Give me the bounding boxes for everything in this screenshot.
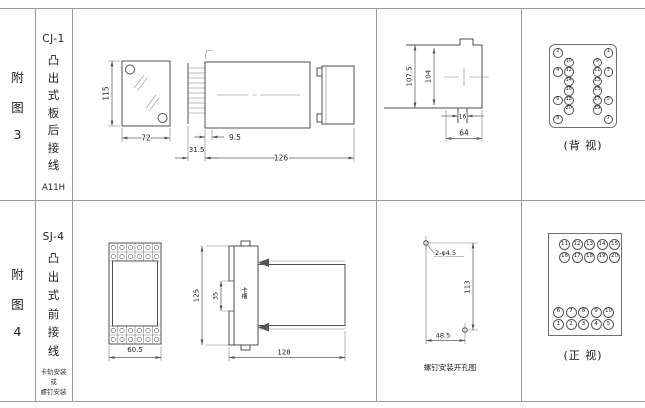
terminal-19: 19 bbox=[593, 105, 603, 115]
terminal-row: 12345 bbox=[553, 319, 619, 330]
dim-front-width: 72 bbox=[141, 134, 151, 143]
terminal-7: 7 bbox=[604, 115, 614, 125]
fig3-type-char: 式 bbox=[48, 87, 60, 103]
terminal-18: 18 bbox=[584, 252, 595, 263]
terminal-row: 109 bbox=[553, 58, 613, 68]
fig3-type-column: CJ-1 凸 出 式 板 后 接 线 A11H bbox=[35, 9, 72, 200]
fig3-index-char: 图 bbox=[11, 97, 24, 116]
terminal-row: 21 bbox=[553, 48, 613, 58]
mount-note-line: 螺钉安装 bbox=[41, 387, 67, 397]
fig3-index-char: 附 bbox=[11, 67, 24, 86]
terminal-row: 618175 bbox=[553, 96, 613, 106]
fig3-code-label: A11H bbox=[42, 183, 65, 193]
terminal-row: 87 bbox=[553, 115, 613, 125]
dim-hole-spacing-h: 48.5 bbox=[436, 332, 450, 340]
terminal-10: 10 bbox=[603, 307, 614, 318]
dim-body-length: 128 bbox=[277, 349, 290, 357]
fig4-mount-note: 卡轨安装 或 螺钉安装 bbox=[41, 367, 67, 397]
hole-note-label: 2-φ4.5 bbox=[435, 249, 456, 257]
terminal-empty bbox=[553, 105, 563, 115]
terminal-8: 8 bbox=[578, 307, 589, 318]
terminal-6: 6 bbox=[553, 96, 563, 106]
cj1-cutout-profile-drawing: 107.5 104 16 64 bbox=[376, 8, 521, 200]
fig3-type-char: 出 bbox=[48, 70, 60, 86]
terminal-19: 19 bbox=[597, 252, 608, 263]
fig4-type-char: 式 bbox=[48, 287, 60, 303]
terminal-empty bbox=[564, 115, 574, 125]
dim-body-length: 126 bbox=[274, 154, 289, 163]
fig3-type-char: 线 bbox=[48, 157, 60, 173]
drill-dimensions: 113 48.5 bbox=[426, 243, 478, 344]
dim-stud-width: 16 bbox=[459, 114, 467, 121]
terminal-empty bbox=[593, 48, 603, 58]
terminal-13: 13 bbox=[593, 77, 603, 87]
terminal-row: 2019 bbox=[553, 105, 613, 115]
terminal-1: 1 bbox=[604, 48, 614, 58]
terminal-6: 6 bbox=[553, 307, 564, 318]
drill-holes: 2-φ4.5 bbox=[424, 236, 468, 337]
terminal-row: 678910 bbox=[553, 307, 619, 318]
dim-front-height: 115 bbox=[102, 86, 111, 101]
terminal-14: 14 bbox=[597, 239, 608, 250]
fig3-type-char: 接 bbox=[48, 140, 60, 156]
mount-note-line: 或 bbox=[41, 377, 67, 387]
fig4-type-char: 前 bbox=[48, 306, 60, 322]
terminal-17: 17 bbox=[572, 252, 583, 263]
terminal-empty bbox=[604, 77, 614, 87]
dim-front-width: 60.5 bbox=[127, 346, 143, 354]
terminal-10: 10 bbox=[564, 58, 574, 68]
front-view-caption: (正 视) bbox=[543, 347, 623, 363]
fig3-type-text: 凸 出 式 板 后 接 线 bbox=[48, 52, 60, 173]
terminal-5: 5 bbox=[604, 96, 614, 106]
terminal-5: 5 bbox=[603, 319, 614, 330]
terminal-empty bbox=[604, 86, 614, 96]
dim-flange-width: 64 bbox=[459, 129, 469, 138]
terminal-20: 20 bbox=[564, 105, 574, 115]
fig4-type-text: 凸 出 式 前 接 线 bbox=[48, 250, 60, 359]
cj1-front-face-view: 115 72 bbox=[102, 61, 171, 143]
terminal-13: 13 bbox=[584, 239, 595, 250]
fig4-index-column: 附 图 4 bbox=[0, 201, 35, 401]
terminal-2: 2 bbox=[566, 319, 577, 330]
dim-terminal-depth: 31.5 bbox=[189, 146, 205, 154]
fig3-type-char: 凸 bbox=[48, 52, 60, 68]
front-view-bottom-group: 67891012345 bbox=[551, 307, 619, 331]
terminal-11: 11 bbox=[593, 67, 603, 77]
front-view-top-group: 11121314151617181920 bbox=[551, 239, 619, 263]
terminal-17: 17 bbox=[593, 96, 603, 106]
table-col-divider-4 bbox=[521, 8, 522, 402]
terminal-12: 12 bbox=[564, 67, 574, 77]
cj1-back-view-terminals: 2110941211314131615618175201987 bbox=[549, 44, 617, 128]
terminal-11: 11 bbox=[559, 239, 570, 250]
terminal-15: 15 bbox=[609, 239, 620, 250]
rail-arrow-marks bbox=[258, 258, 269, 331]
fig3-type-char: 板 bbox=[48, 105, 60, 121]
terminal-empty bbox=[553, 86, 563, 96]
terminal-20: 20 bbox=[609, 252, 620, 263]
fig4-model-label: SJ-4 bbox=[43, 231, 65, 243]
terminal-empty bbox=[604, 105, 614, 115]
terminal-3: 3 bbox=[578, 319, 589, 330]
cj1-cutout-dimensions: 107.5 104 16 64 bbox=[406, 45, 485, 142]
terminal-empty bbox=[553, 58, 563, 68]
fig4-type-char: 接 bbox=[48, 324, 60, 340]
terminal-row: 1112131415 bbox=[559, 239, 619, 250]
dim-slot-height: 35 bbox=[212, 292, 220, 300]
dim-inner-height: 104 bbox=[425, 69, 433, 83]
sj4-front-face-view: 60.5 bbox=[109, 243, 161, 361]
dim-pin-offset: 9.5 bbox=[229, 133, 241, 142]
terminal-empty bbox=[564, 48, 574, 58]
dim-body-height: 125 bbox=[193, 289, 201, 302]
terminal-1: 1 bbox=[553, 319, 564, 330]
terminal-row: 1617181920 bbox=[559, 252, 619, 263]
terminal-3: 3 bbox=[604, 67, 614, 77]
terminal-16: 16 bbox=[564, 86, 574, 96]
dim-cutout-height: 107.5 bbox=[406, 66, 414, 86]
terminal-4: 4 bbox=[553, 67, 563, 77]
page: 附 图 3 CJ-1 凸 出 式 板 后 接 线 A11H bbox=[0, 0, 645, 408]
dim-hole-spacing-v: 113 bbox=[464, 280, 472, 293]
drill-caption: 螺钉安装开孔图 bbox=[424, 362, 477, 372]
terminal-empty bbox=[593, 115, 603, 125]
back-view-caption: (背 视) bbox=[543, 137, 623, 153]
table-border-bottom bbox=[0, 401, 645, 402]
fig3-index-column: 附 图 3 bbox=[0, 9, 35, 200]
terminal-14: 14 bbox=[564, 77, 574, 87]
cj1-cutout-outline bbox=[384, 39, 489, 123]
fig4-index-char: 4 bbox=[14, 324, 22, 339]
sj4-dimension-drawing: 60.5 125 35 卡槽 128 bbox=[72, 200, 376, 401]
terminal-empty bbox=[604, 58, 614, 68]
mount-note-line: 卡轨安装 bbox=[41, 367, 67, 377]
terminal-18: 18 bbox=[564, 96, 574, 106]
fig3-model-label: CJ-1 bbox=[42, 33, 65, 45]
cj1-side-view: 9.5 31.5 126 bbox=[175, 50, 354, 163]
fig4-type-char: 线 bbox=[48, 343, 60, 359]
fig3-index-char: 3 bbox=[14, 127, 22, 142]
terminal-12: 12 bbox=[572, 239, 583, 250]
terminal-7: 7 bbox=[566, 307, 577, 318]
sj4-drill-hole-drawing: 2-φ4.5 113 48.5 螺钉安装开孔图 bbox=[376, 200, 521, 401]
terminal-4: 4 bbox=[591, 319, 602, 330]
fig4-index-char: 图 bbox=[11, 294, 24, 313]
fig4-type-char: 凸 bbox=[48, 250, 60, 266]
fig4-type-column: SJ-4 凸 出 式 前 接 线 卡轨安装 或 螺钉安装 bbox=[35, 201, 72, 401]
terminal-8: 8 bbox=[553, 115, 563, 125]
terminal-row: 1615 bbox=[553, 86, 613, 96]
fig3-type-char: 后 bbox=[48, 122, 60, 138]
sj4-side-view: 125 35 卡槽 128 bbox=[193, 241, 346, 361]
terminal-row: 1413 bbox=[553, 77, 613, 87]
terminal-2: 2 bbox=[553, 48, 563, 58]
sj4-front-view-terminals: 11121314151617181920 67891012345 bbox=[548, 233, 622, 336]
terminal-empty bbox=[553, 77, 563, 87]
terminal-row: 412113 bbox=[553, 67, 613, 77]
terminal-16: 16 bbox=[559, 252, 570, 263]
fig4-type-char: 出 bbox=[48, 269, 60, 285]
slot-label: 卡槽 bbox=[240, 286, 247, 300]
terminal-9: 9 bbox=[593, 58, 603, 68]
terminal-15: 15 bbox=[593, 86, 603, 96]
fig4-index-char: 附 bbox=[11, 264, 24, 283]
cj1-dimension-drawing: 115 72 9.5 31.5 126 bbox=[72, 8, 376, 200]
terminal-9: 9 bbox=[591, 307, 602, 318]
